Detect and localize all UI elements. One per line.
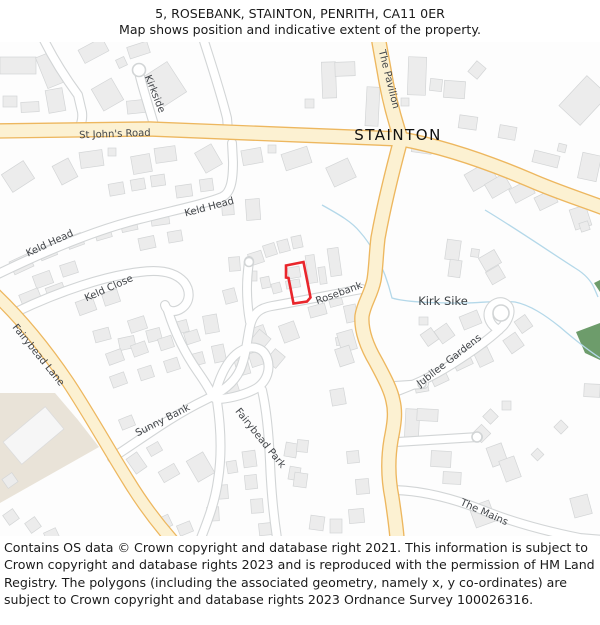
building: [296, 439, 308, 452]
building: [93, 327, 112, 343]
building: [429, 78, 442, 91]
building: [284, 442, 298, 458]
building: [407, 57, 426, 96]
building: [514, 315, 533, 334]
building: [3, 509, 20, 526]
building: [158, 463, 180, 482]
building: [327, 247, 342, 276]
cul-de-sac-rosebank: [245, 258, 254, 267]
building: [118, 415, 135, 430]
building: [244, 474, 257, 489]
street-label-fairybead-park: Fairybead Park: [233, 406, 288, 470]
building: [130, 178, 146, 191]
building: [242, 450, 257, 468]
building: [330, 388, 347, 406]
building: [116, 57, 128, 69]
building: [108, 148, 116, 156]
building: [291, 235, 303, 249]
building: [470, 248, 479, 257]
building: [127, 316, 147, 334]
building: [1, 161, 34, 193]
building: [559, 76, 600, 126]
building: [154, 146, 177, 164]
building: [229, 257, 241, 272]
building: [226, 460, 238, 474]
building: [502, 401, 511, 410]
building: [281, 146, 312, 171]
building: [401, 98, 409, 106]
building: [330, 519, 342, 533]
building: [245, 199, 260, 221]
place-label-stainton: STAINTON: [354, 126, 442, 144]
building: [431, 450, 452, 467]
building: [499, 456, 522, 482]
building: [131, 153, 153, 174]
building: [105, 349, 124, 366]
building: [419, 317, 428, 325]
page-subtitle: Map shows position and indicative extent…: [0, 22, 600, 38]
building: [271, 282, 282, 294]
building: [335, 62, 355, 77]
building: [262, 242, 277, 257]
building: [150, 174, 165, 187]
building: [268, 145, 276, 153]
building: [531, 448, 544, 461]
building: [417, 408, 439, 421]
map-container: St John's Road Kirkside The Pavilion STA…: [0, 42, 600, 536]
building: [348, 508, 364, 523]
building: [138, 235, 156, 250]
building: [443, 80, 465, 98]
building: [445, 239, 462, 261]
building: [277, 239, 291, 253]
building: [167, 230, 183, 243]
building: [468, 61, 486, 79]
building: [578, 152, 600, 181]
building: [498, 125, 517, 141]
building: [503, 332, 524, 354]
building: [483, 409, 499, 425]
map-header: 5, ROSEBANK, STAINTON, PENRITH, CA11 0ER…: [0, 0, 600, 42]
building: [186, 452, 214, 482]
building: [79, 149, 104, 168]
cul-de-sac-jubilee: [493, 305, 509, 321]
building: [3, 96, 17, 107]
building: [25, 517, 42, 534]
building: [326, 158, 357, 187]
building: [127, 42, 151, 59]
building: [355, 478, 369, 494]
building: [318, 267, 327, 285]
green-area: [576, 323, 600, 360]
building: [52, 158, 78, 185]
building: [176, 521, 193, 536]
map: St John's Road Kirkside The Pavilion STA…: [0, 42, 600, 536]
building: [448, 259, 462, 278]
building: [137, 365, 154, 381]
building: [163, 357, 180, 373]
cul-de-sac-spur: [472, 432, 482, 442]
building: [32, 270, 53, 288]
building: [365, 87, 380, 127]
building: [434, 323, 455, 344]
cul-de-sac-kirkside: [133, 64, 146, 77]
building: [91, 78, 123, 111]
building: [43, 528, 59, 536]
building: [241, 147, 263, 165]
street-label-sunny-bank: Sunny Bank: [134, 402, 192, 439]
building: [21, 102, 39, 113]
building: [175, 184, 193, 198]
street-label-st-johns-road: St John's Road: [79, 128, 151, 141]
building: [458, 115, 478, 130]
buildings: [0, 42, 600, 536]
building: [260, 276, 271, 289]
building: [78, 42, 109, 63]
building: [557, 143, 567, 153]
building: [554, 420, 568, 434]
building: [203, 314, 220, 334]
building: [60, 261, 79, 277]
building: [293, 472, 308, 488]
building: [146, 441, 162, 456]
building: [532, 150, 560, 168]
building: [195, 144, 223, 173]
building: [199, 178, 214, 192]
building: [459, 310, 482, 330]
building: [321, 62, 336, 98]
building: [570, 494, 593, 518]
copyright-footer: Contains OS data © Crown copyright and d…: [0, 536, 600, 625]
building: [278, 321, 299, 343]
building: [309, 515, 325, 531]
building: [222, 288, 237, 305]
building: [443, 472, 462, 485]
building: [305, 99, 314, 108]
building: [0, 57, 36, 74]
building: [109, 372, 127, 388]
building: [346, 450, 359, 463]
water-label-kirk-sike: Kirk Sike: [418, 294, 468, 308]
building: [584, 384, 600, 398]
page-title: 5, ROSEBANK, STAINTON, PENRITH, CA11 0ER: [0, 5, 600, 22]
building: [251, 499, 264, 514]
building: [108, 182, 125, 196]
building: [45, 88, 66, 114]
